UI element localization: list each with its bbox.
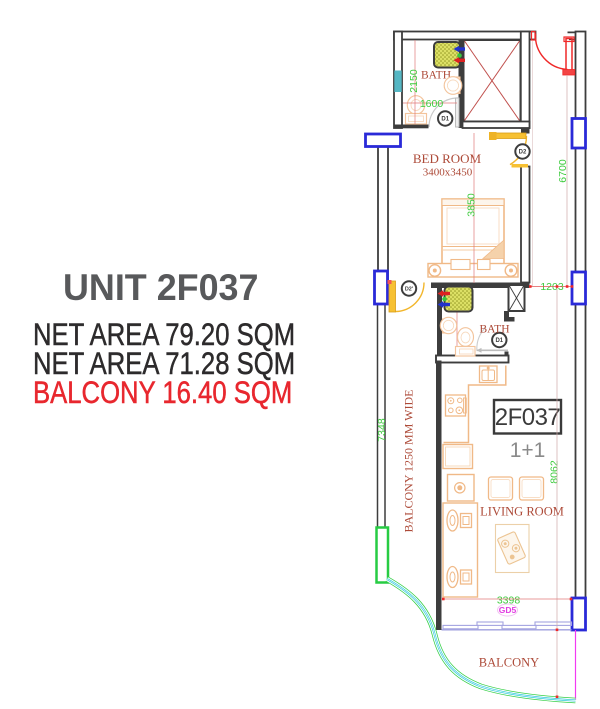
svg-text:1600: 1600 bbox=[420, 98, 444, 110]
svg-text:3850: 3850 bbox=[466, 193, 478, 217]
svg-text:BATH: BATH bbox=[479, 324, 509, 336]
svg-text:8062: 8062 bbox=[549, 460, 561, 484]
svg-text:2F037: 2F037 bbox=[495, 404, 561, 431]
svg-text:3400x3450: 3400x3450 bbox=[423, 167, 473, 179]
svg-text:BALCONY: BALCONY bbox=[479, 656, 539, 670]
svg-text:D1: D1 bbox=[495, 338, 503, 344]
svg-text:BALCONY 1250 MM WIDE: BALCONY 1250 MM WIDE bbox=[402, 390, 416, 533]
svg-text:D2': D2' bbox=[405, 287, 414, 293]
svg-text:LIVING ROOM: LIVING ROOM bbox=[480, 505, 564, 519]
svg-text:1203: 1203 bbox=[540, 281, 564, 293]
svg-text:BED ROOM: BED ROOM bbox=[413, 151, 482, 166]
svg-text:1+1: 1+1 bbox=[510, 439, 546, 462]
svg-text:2150: 2150 bbox=[408, 69, 420, 93]
svg-text:7348: 7348 bbox=[376, 418, 388, 442]
svg-text:GD5: GD5 bbox=[499, 605, 517, 615]
svg-text:D2: D2 bbox=[519, 150, 527, 156]
svg-text:D1: D1 bbox=[441, 117, 449, 123]
